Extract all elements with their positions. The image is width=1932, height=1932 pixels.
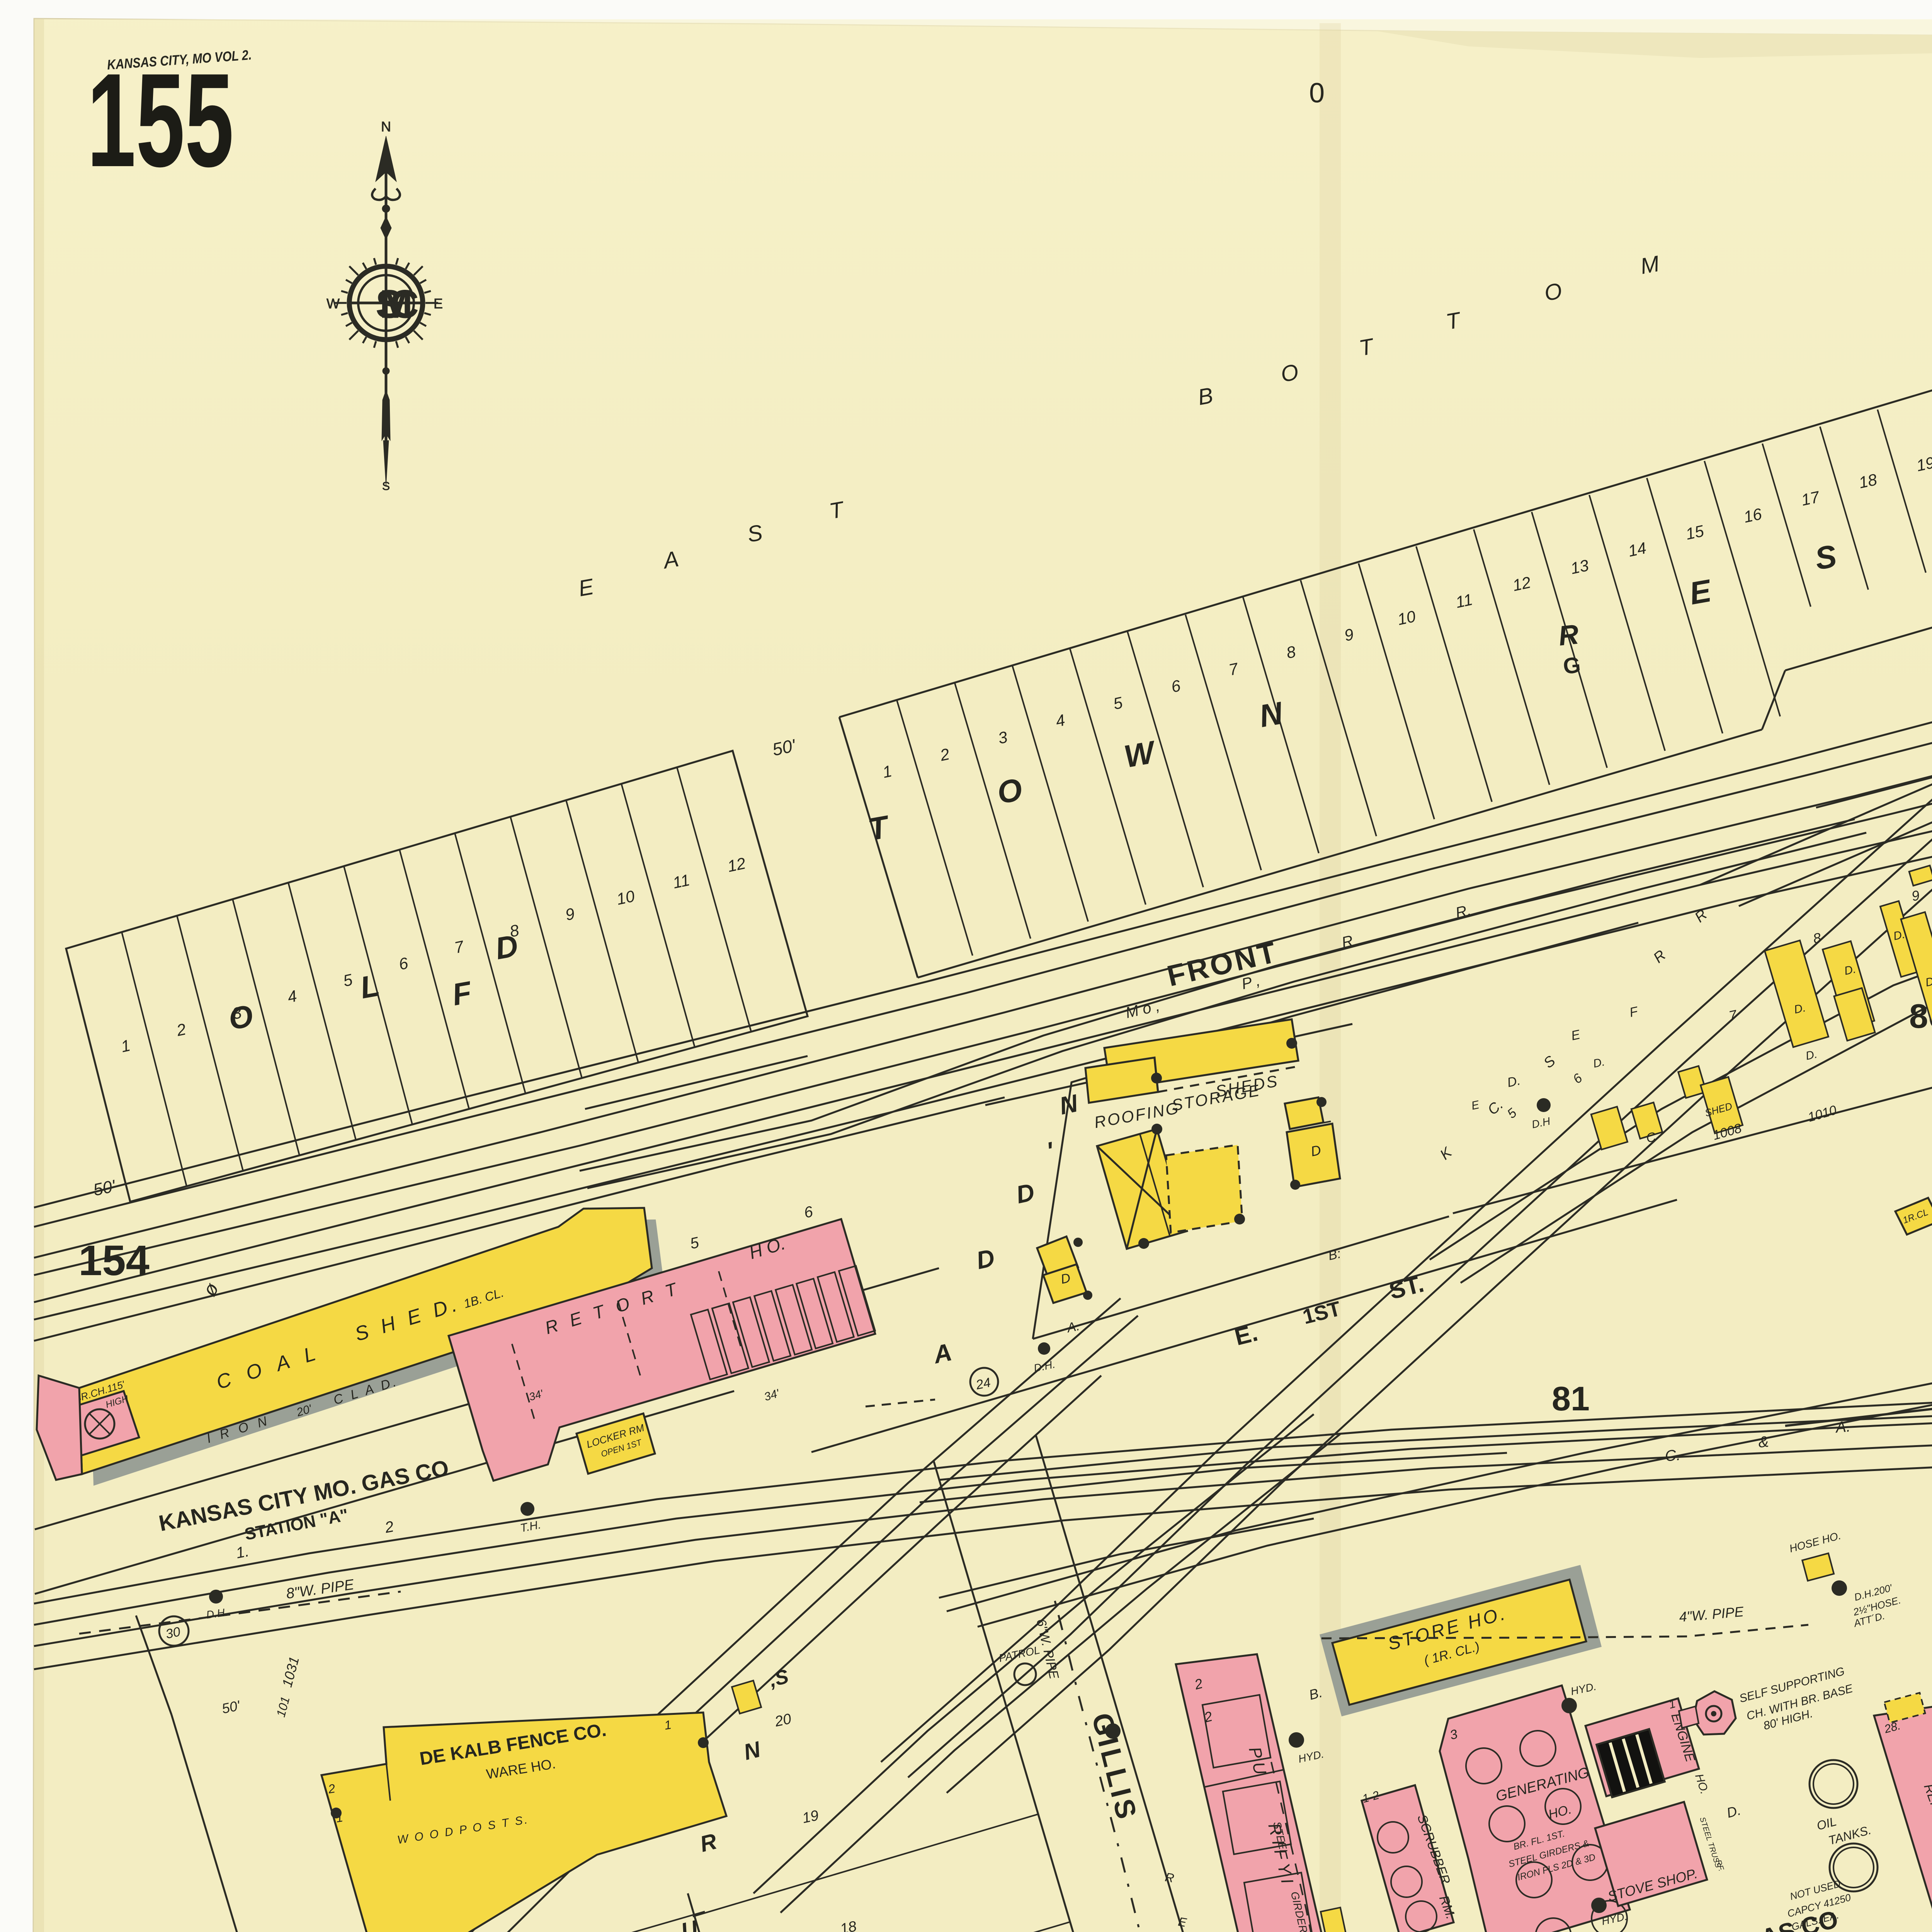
svg-text:154: 154 [78, 1237, 150, 1284]
svg-text:155: 155 [87, 46, 234, 195]
svg-text:13: 13 [1569, 556, 1590, 578]
svg-text:19: 19 [801, 1807, 820, 1827]
svg-text:G: G [1562, 652, 1582, 679]
svg-text:30: 30 [164, 1624, 182, 1642]
svg-text:24: 24 [974, 1375, 992, 1393]
svg-text:R: R [1557, 619, 1580, 652]
svg-text:&: & [1758, 1433, 1769, 1451]
svg-text:20: 20 [773, 1711, 793, 1730]
svg-text:12: 12 [726, 854, 747, 876]
svg-text:0: 0 [1309, 78, 1325, 109]
svg-text:14: 14 [1626, 539, 1648, 560]
svg-text:12: 12 [1511, 573, 1532, 595]
svg-text:81: 81 [1552, 1379, 1590, 1418]
svg-text:N: N [381, 119, 391, 134]
svg-text:C.: C. [1664, 1446, 1681, 1464]
